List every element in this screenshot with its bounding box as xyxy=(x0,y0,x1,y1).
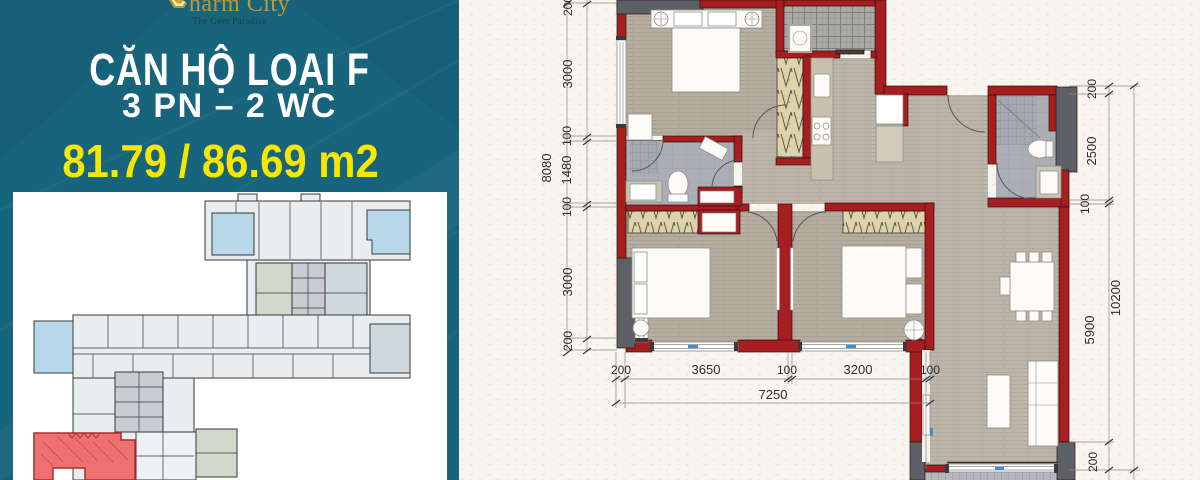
svg-text:1480: 1480 xyxy=(559,156,574,185)
svg-text:200: 200 xyxy=(561,0,575,16)
svg-text:3200: 3200 xyxy=(844,362,873,377)
svg-text:3650: 3650 xyxy=(692,362,721,377)
svg-text:8080: 8080 xyxy=(539,154,554,183)
svg-text:2500: 2500 xyxy=(1084,137,1099,166)
svg-text:100: 100 xyxy=(920,363,940,377)
svg-text:200: 200 xyxy=(561,331,575,351)
svg-text:100: 100 xyxy=(777,363,797,377)
svg-text:3000: 3000 xyxy=(560,268,575,297)
svg-text:100: 100 xyxy=(560,197,574,217)
svg-text:200: 200 xyxy=(1086,452,1100,472)
svg-text:5900: 5900 xyxy=(1082,316,1097,345)
svg-text:100: 100 xyxy=(1078,194,1092,214)
svg-text:200: 200 xyxy=(611,363,631,377)
svg-text:200: 200 xyxy=(1085,79,1099,99)
svg-text:3000: 3000 xyxy=(560,60,575,89)
svg-text:7250: 7250 xyxy=(759,387,788,402)
svg-text:10200: 10200 xyxy=(1108,280,1123,316)
svg-text:100: 100 xyxy=(560,126,574,146)
